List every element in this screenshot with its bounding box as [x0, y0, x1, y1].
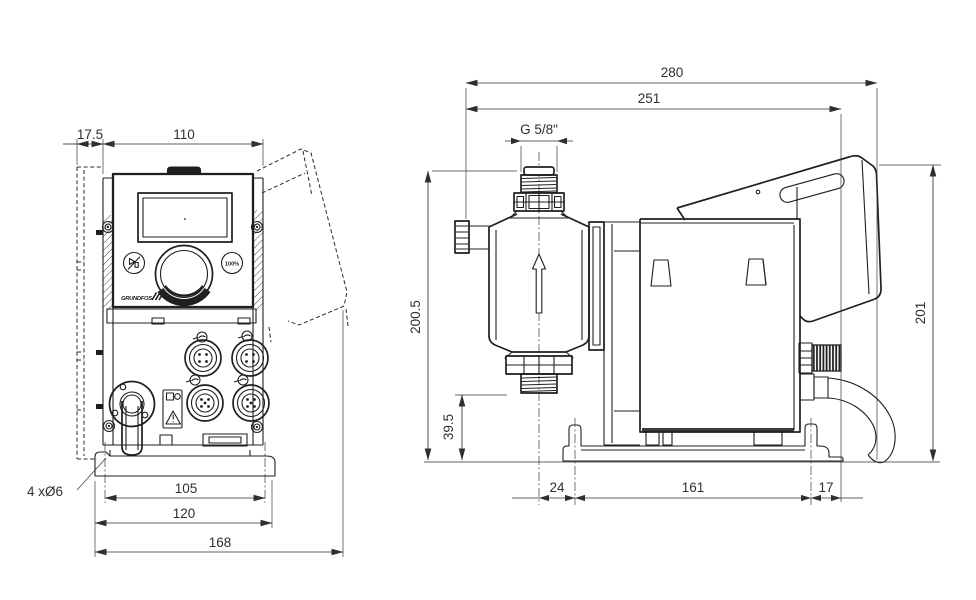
control-panel: 100% GRUNDFOS [113, 174, 253, 307]
dim-bottom-chain: 24 161 17 [512, 480, 863, 501]
dim-head-overhang: 24 [549, 480, 565, 495]
dim-rear-overhang: 17 [818, 480, 833, 495]
dim-baseplate-width: 120 [95, 506, 272, 523]
mounting-holes-note: 4 xØ6 [27, 458, 106, 499]
bracket-clip [96, 350, 103, 355]
svg-text:120: 120 [173, 506, 196, 521]
vent-slot [651, 260, 671, 286]
control-cube-hidden-outline [257, 149, 348, 342]
connector-thread [812, 345, 841, 371]
dim-valve-height: 39.5 [441, 395, 462, 460]
hinge-band [107, 309, 256, 324]
handle-slot [778, 172, 846, 204]
rear-connector [799, 343, 841, 373]
drive-housing [604, 219, 800, 445]
dim-overall-height: 200.5 [408, 171, 428, 460]
manual-icon [167, 393, 174, 400]
control-cube [677, 156, 881, 322]
flange-bolt-hole [120, 384, 126, 390]
drawing-canvas: 100% GRUNDFOS [0, 0, 976, 600]
display-dot [184, 218, 186, 220]
start-stop-button [124, 253, 145, 274]
svg-text:201: 201 [913, 302, 928, 325]
mains-cable [800, 374, 895, 463]
leader-line [77, 458, 106, 490]
priming-button-label: 100% [225, 261, 239, 267]
cube-screw-dot [756, 190, 760, 194]
m12-connector [185, 340, 221, 376]
arrow-badge-icon [175, 394, 181, 400]
cable-gland [110, 382, 155, 456]
svg-text:GRUNDFOS: GRUNDFOS [121, 296, 152, 302]
side-plate-hatch [104, 215, 113, 310]
dim-depth-to-mount: 251 [466, 91, 841, 109]
svg-text:G 5/8": G 5/8" [520, 122, 558, 137]
union-nut [514, 193, 564, 211]
dial-knob [156, 246, 213, 303]
flow-arrow-icon [533, 254, 546, 313]
dim-connection-thread: G 5/8" [505, 122, 573, 144]
svg-text:251: 251 [638, 91, 661, 106]
svg-text:17.5: 17.5 [77, 127, 103, 142]
lower-nut [506, 356, 572, 374]
side-dimensions: 280 251 G 5/8" 200.5 39.5 [408, 65, 941, 502]
svg-text:4 xØ6: 4 xØ6 [27, 484, 63, 499]
dosing-head [455, 167, 604, 393]
dim-hole-spacing: 105 [105, 481, 265, 498]
bracket-clip [96, 230, 103, 235]
dim-housing-width: 110 [103, 127, 263, 144]
connector-symbol-icon [234, 375, 248, 385]
wall-bracket-hidden-outline [77, 167, 103, 459]
connector-symbol-icon [238, 331, 252, 341]
m12-connector [233, 385, 269, 421]
dimensional-drawing: 100% GRUNDFOS [0, 0, 976, 600]
flange-bolt-hole [142, 412, 148, 418]
dim-overall-width: 168 [95, 535, 343, 552]
dim-baseplate-length: 161 [682, 480, 705, 495]
svg-text:280: 280 [661, 65, 684, 80]
bracket-clip [96, 404, 103, 409]
side-view: 280 251 G 5/8" 200.5 39.5 [408, 65, 941, 505]
dim-bracket-offset: 17.5 [63, 127, 103, 144]
svg-text:39.5: 39.5 [441, 414, 456, 440]
baseplate-clip [203, 434, 247, 446]
front-view: 100% GRUNDFOS [27, 127, 348, 557]
cable-end [868, 455, 884, 463]
svg-text:105: 105 [175, 481, 198, 496]
connector-symbol-icon [186, 375, 200, 385]
priming-100-button: 100% [222, 253, 243, 274]
svg-text:110: 110 [173, 127, 195, 142]
dim-module-height: 201 [913, 165, 933, 461]
warning-label [163, 390, 182, 428]
side-port [455, 221, 489, 253]
m12-connector [187, 385, 223, 421]
valve-cap [524, 167, 554, 175]
connector-panel [185, 331, 269, 421]
svg-text:168: 168 [209, 535, 232, 550]
head-mounting-plate [589, 222, 604, 350]
dim-overall-depth: 280 [466, 65, 877, 83]
svg-text:200.5: 200.5 [408, 300, 423, 334]
